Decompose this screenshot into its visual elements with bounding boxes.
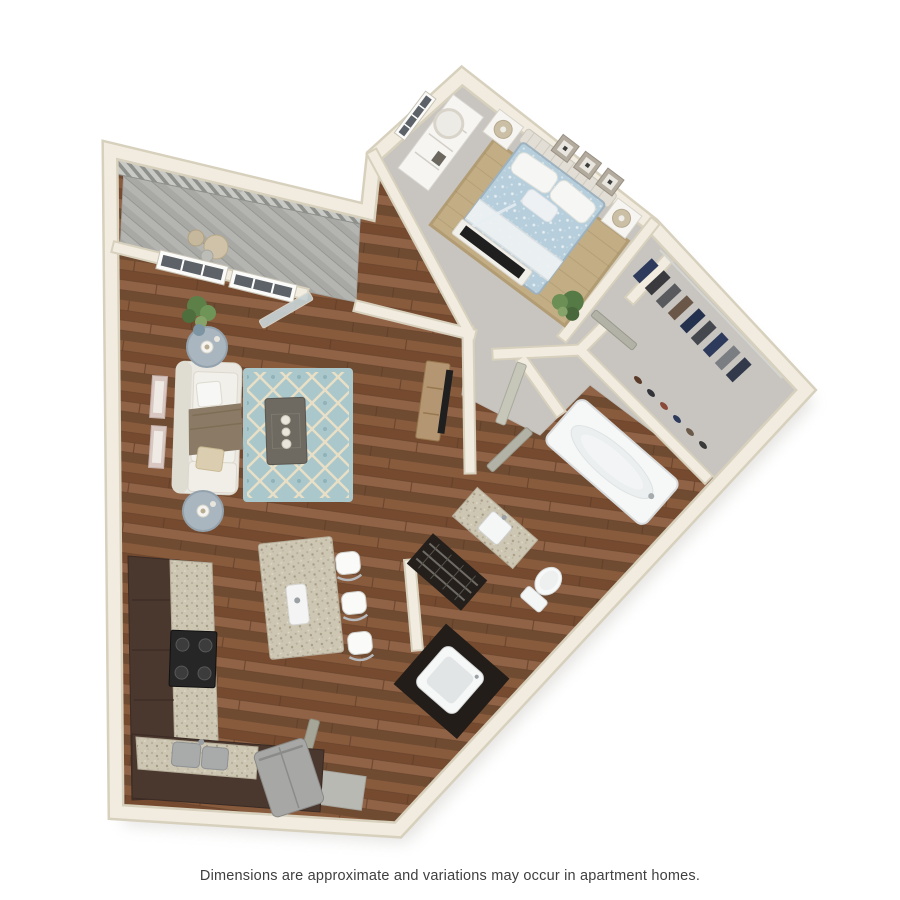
side-table [183, 491, 223, 531]
plant-pot [193, 324, 205, 336]
sofa [172, 361, 247, 495]
living-bath-wall [468, 332, 470, 468]
hall-wall [498, 350, 582, 354]
floor-plan-svg [0, 0, 900, 900]
pillow [196, 446, 225, 471]
balcony-chair [188, 230, 204, 246]
side-table [187, 327, 227, 367]
floor-plan-image: Dimensions are approximate and variation… [0, 0, 900, 900]
range [169, 630, 217, 688]
coffee-table [265, 397, 307, 464]
kitchen-island [258, 536, 344, 659]
disclaimer-text: Dimensions are approximate and variation… [0, 868, 900, 884]
island-sink [286, 583, 310, 625]
pillow [196, 381, 222, 407]
